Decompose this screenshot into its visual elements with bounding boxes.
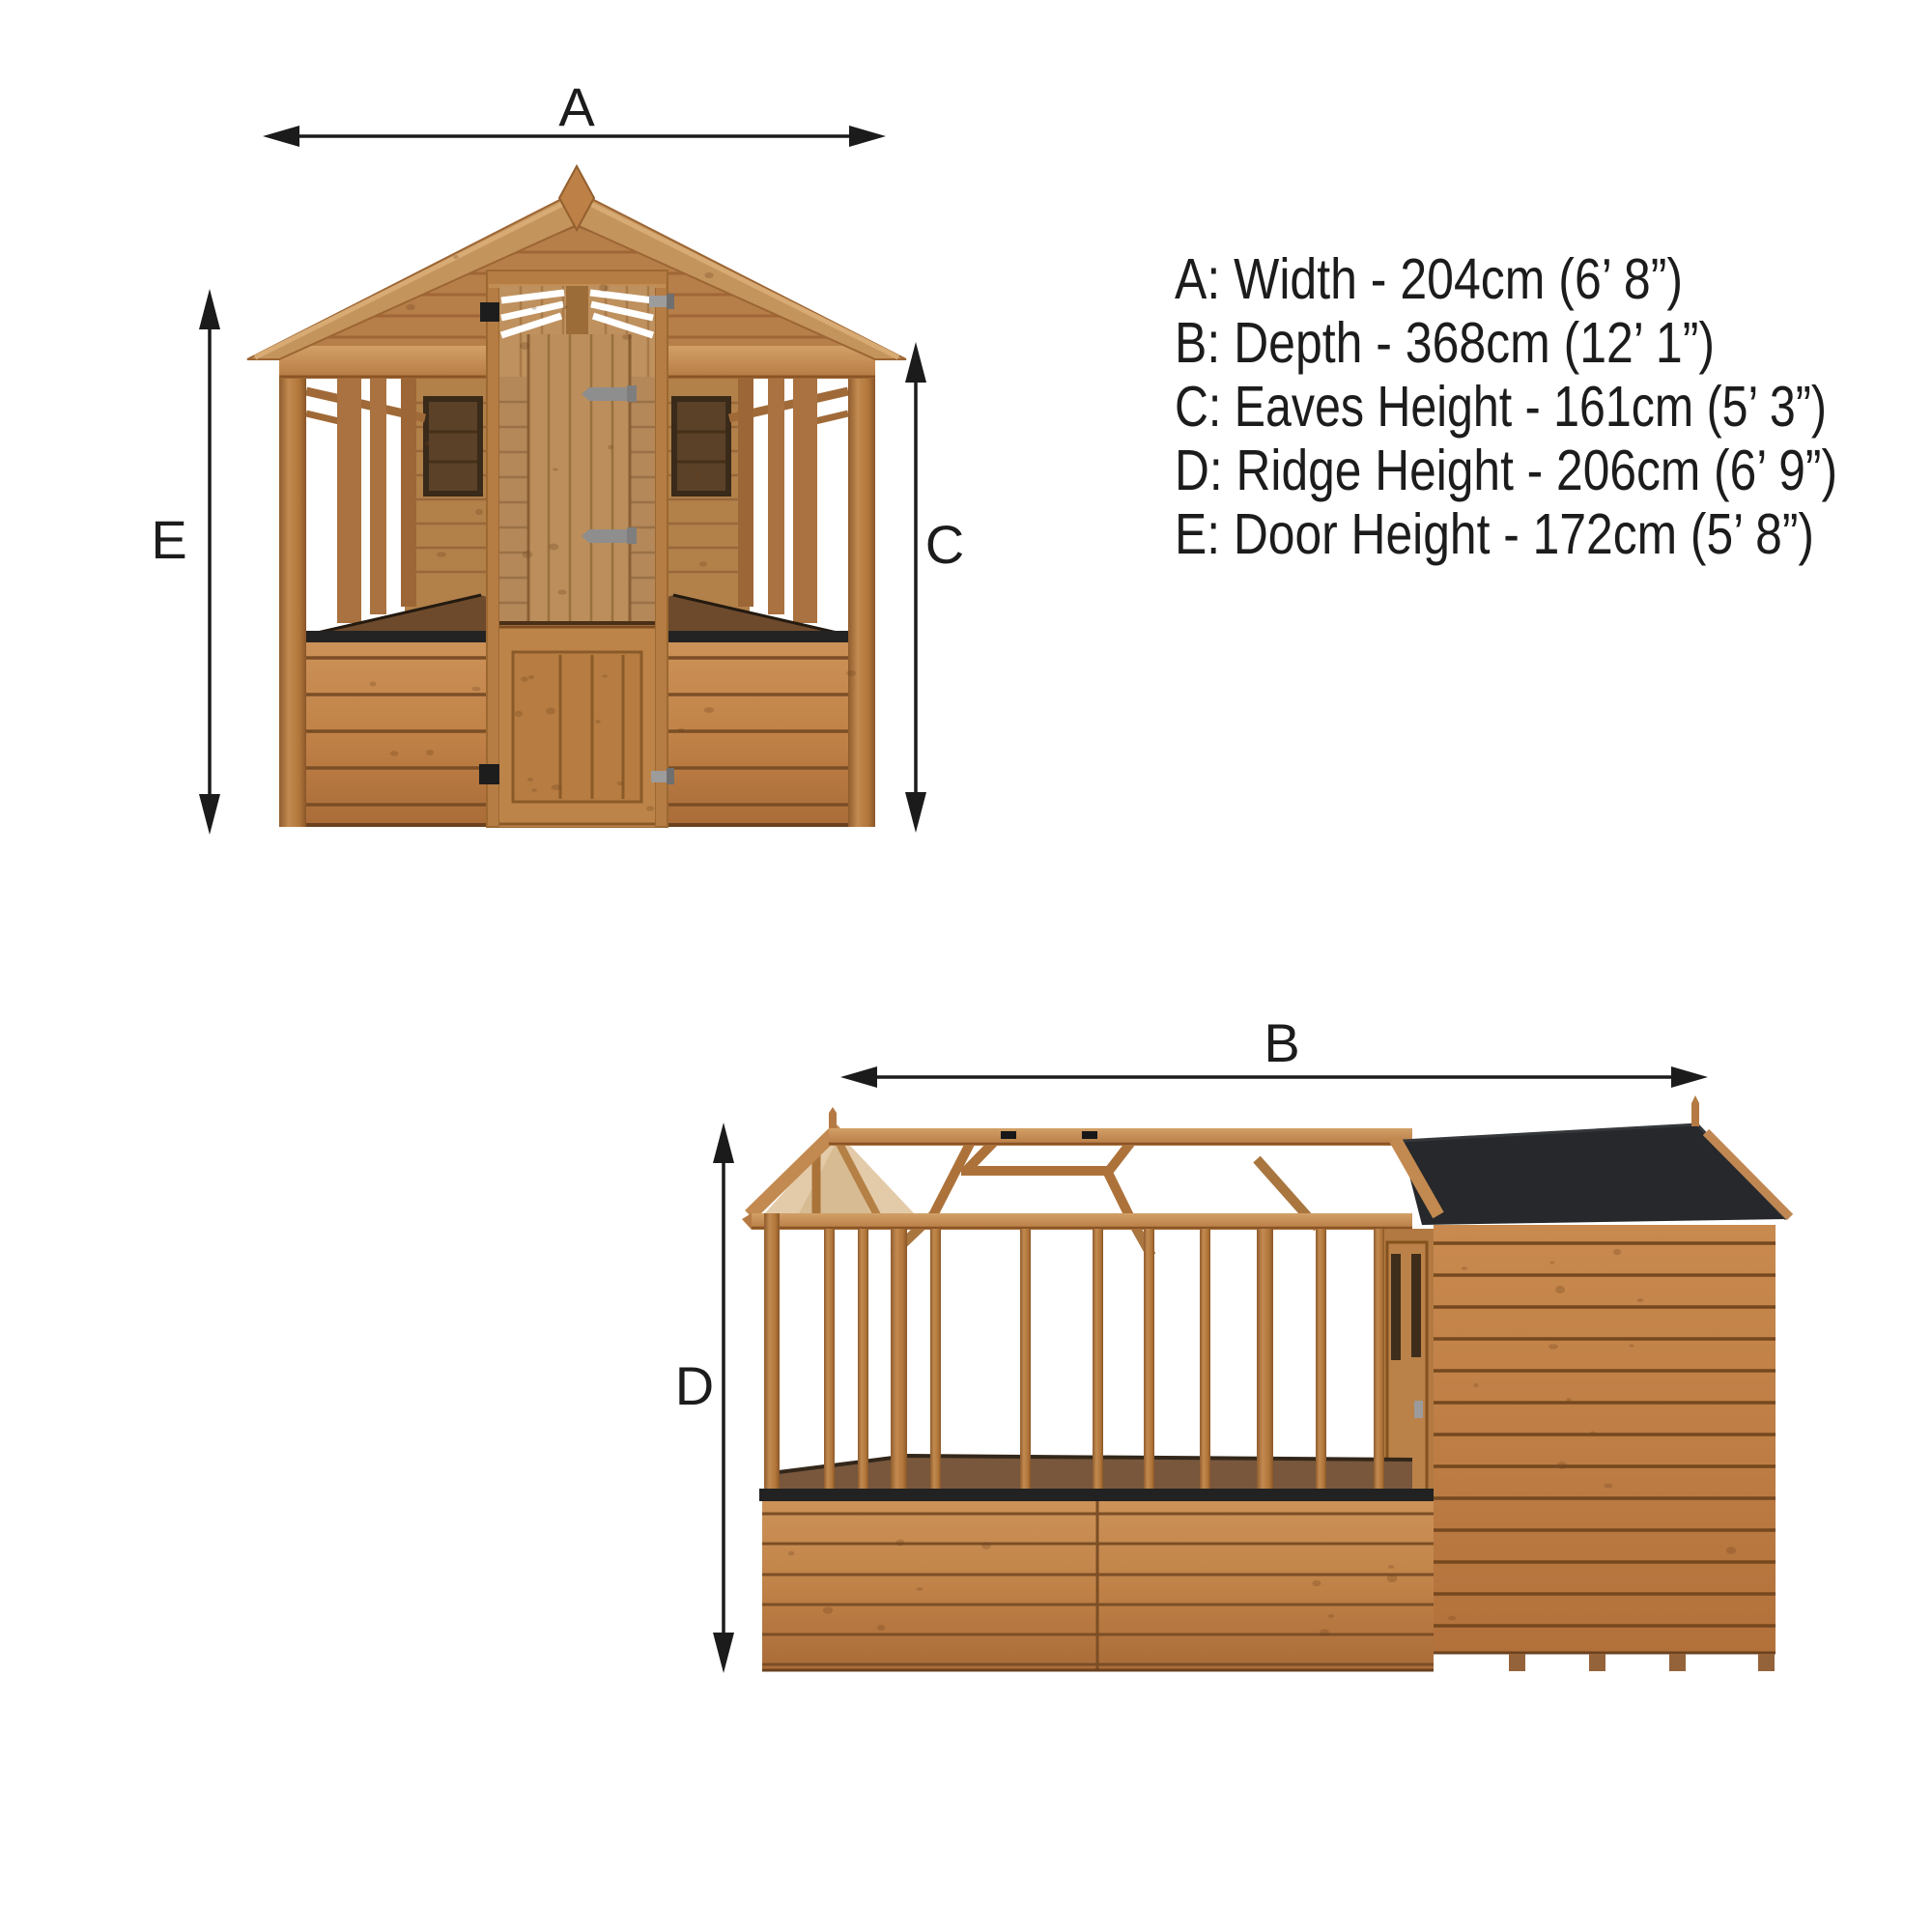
svg-text:D: Ridge Height - 206cm (6’ 9”: D: Ridge Height - 206cm (6’ 9”) <box>1175 439 1837 502</box>
svg-text:D: D <box>675 1355 714 1416</box>
svg-text:B: Depth - 368cm (12’ 1”): B: Depth - 368cm (12’ 1”) <box>1175 311 1715 375</box>
svg-text:E: E <box>151 509 186 570</box>
svg-text:A: A <box>558 76 595 137</box>
svg-text:E: Door Height - 172cm (5’ 8”): E: Door Height - 172cm (5’ 8”) <box>1175 502 1814 566</box>
svg-text:A: Width - 204cm (6’ 8”): A: Width - 204cm (6’ 8”) <box>1175 247 1683 311</box>
svg-text:B: B <box>1264 1012 1299 1073</box>
svg-text:C: Eaves Height - 161cm (5’ 3”: C: Eaves Height - 161cm (5’ 3”) <box>1175 375 1827 439</box>
svg-text:C: C <box>925 514 964 575</box>
